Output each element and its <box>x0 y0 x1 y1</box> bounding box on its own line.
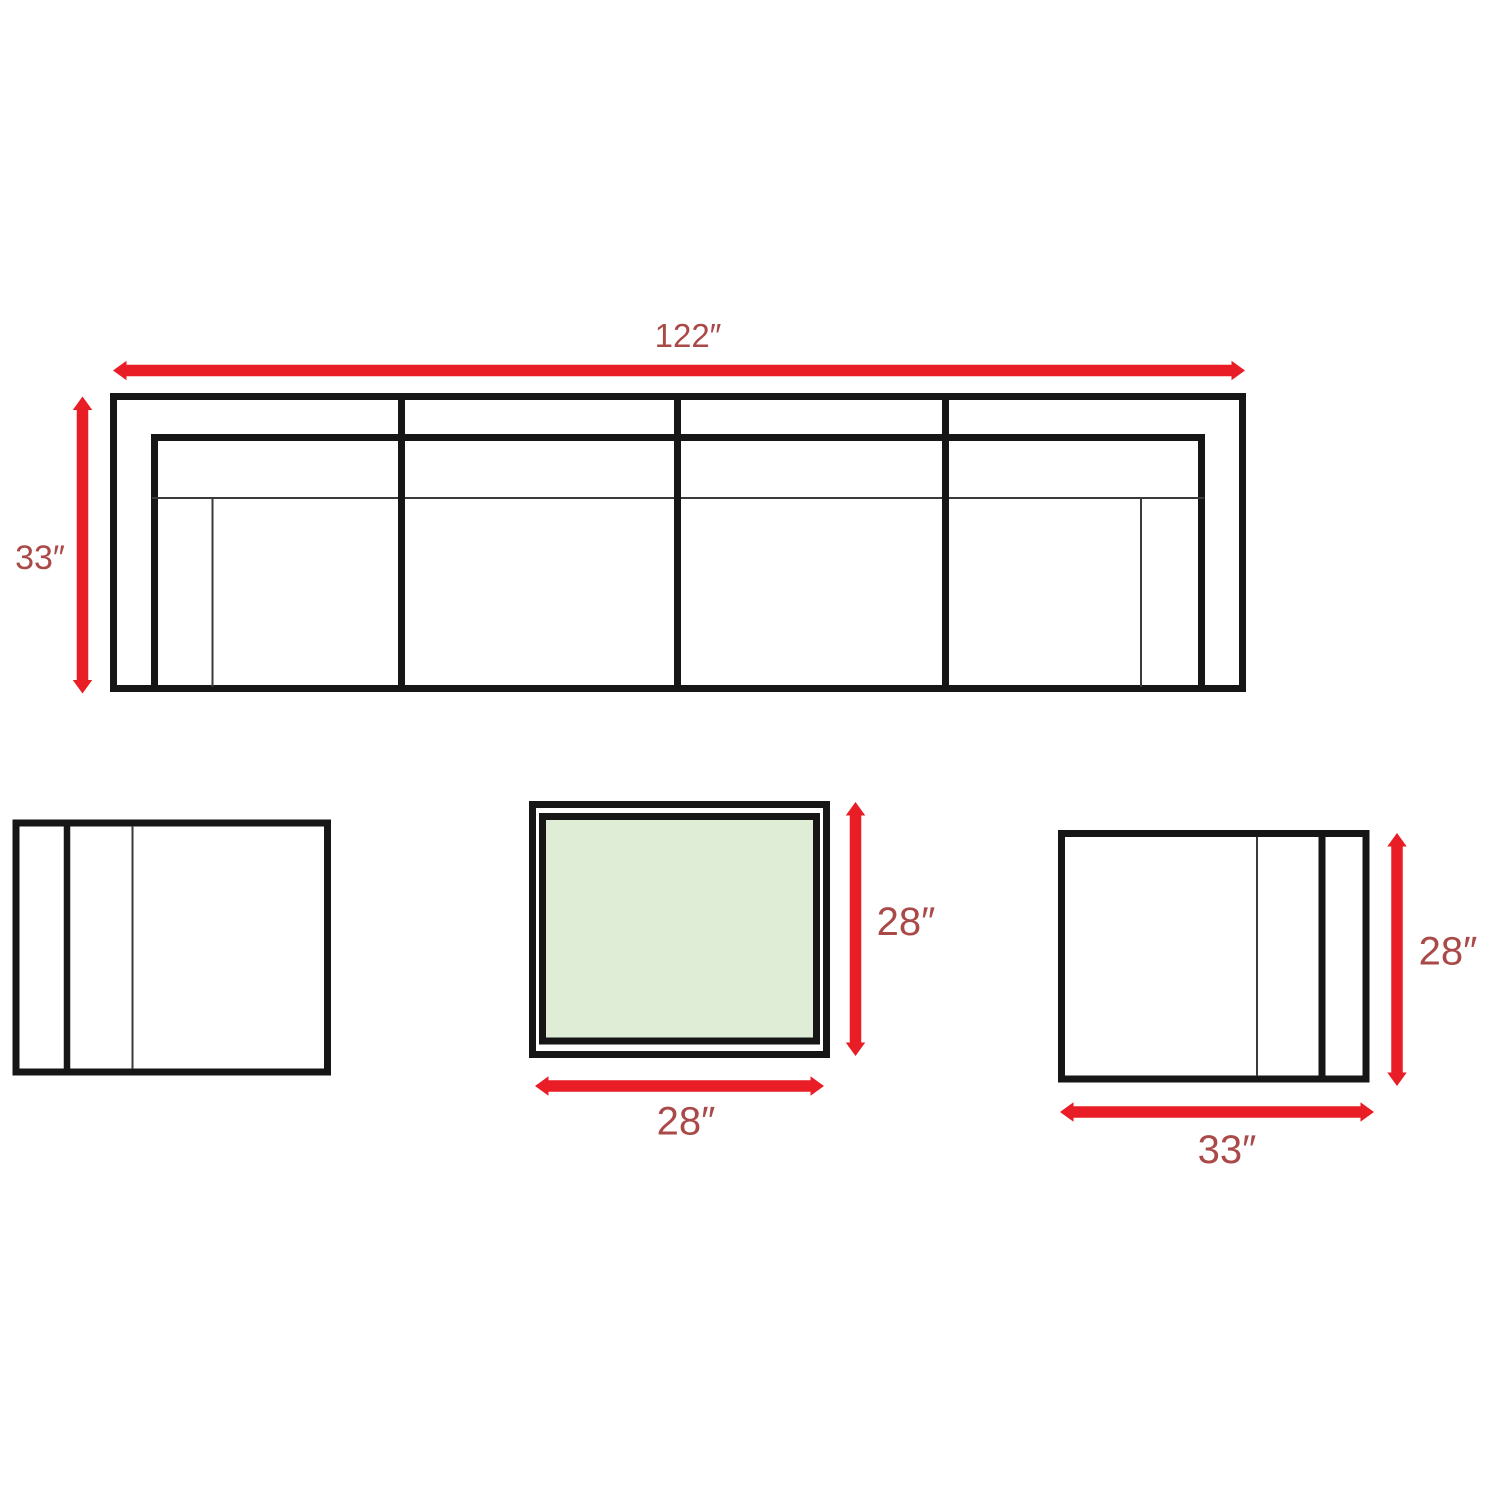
svg-text:33″: 33″ <box>15 539 65 577</box>
svg-text:28″: 28″ <box>1419 930 1478 974</box>
svg-text:33″: 33″ <box>1198 1128 1257 1172</box>
svg-text:28″: 28″ <box>877 900 936 944</box>
svg-text:122″: 122″ <box>655 317 722 354</box>
svg-text:28″: 28″ <box>657 1100 716 1144</box>
